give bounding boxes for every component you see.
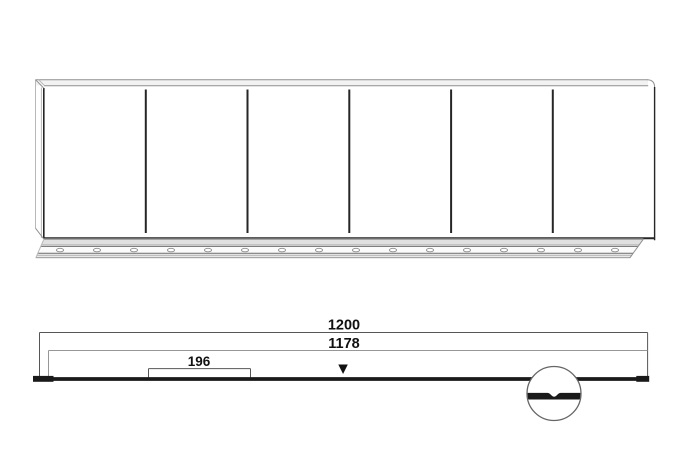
panel-dividers [146, 90, 553, 234]
rail-slot [167, 248, 174, 252]
top-edge-band [36, 80, 649, 86]
rail-slot [537, 248, 544, 252]
rail-slot [426, 248, 433, 252]
profile-left-endcap [33, 376, 54, 382]
cabinet-front-view [36, 80, 655, 241]
rail-slot [574, 248, 581, 252]
rail-slot [241, 248, 248, 252]
rail-slot [500, 248, 507, 252]
rail-slot-strip [30, 247, 652, 253]
technical-drawing-canvas: 1200 1178 196 ▼ [0, 0, 687, 470]
rail-slot [389, 248, 396, 252]
rail-slot [130, 248, 137, 252]
rail-slot [352, 248, 359, 252]
rail-slot [93, 248, 100, 252]
dim-label-rail: 1178 [328, 336, 359, 352]
bottom-left-mitre-diagonal [36, 228, 44, 239]
rail-slot [315, 248, 322, 252]
rail-slot [463, 248, 470, 252]
down-triangle-marker: ▼ [338, 361, 348, 376]
rail-slot [278, 248, 285, 252]
dim-label-section: 196 [188, 354, 211, 369]
rail-slot [56, 248, 63, 252]
top-right-corner-curve [648, 80, 655, 88]
dim-label-overall: 1200 [328, 318, 360, 334]
drawing-page: 1200 1178 196 ▼ [0, 0, 687, 470]
rail-slot [204, 248, 211, 252]
rail-slot [611, 248, 618, 252]
profile-right-endcap [636, 376, 649, 382]
bottom-rail [30, 239, 652, 259]
